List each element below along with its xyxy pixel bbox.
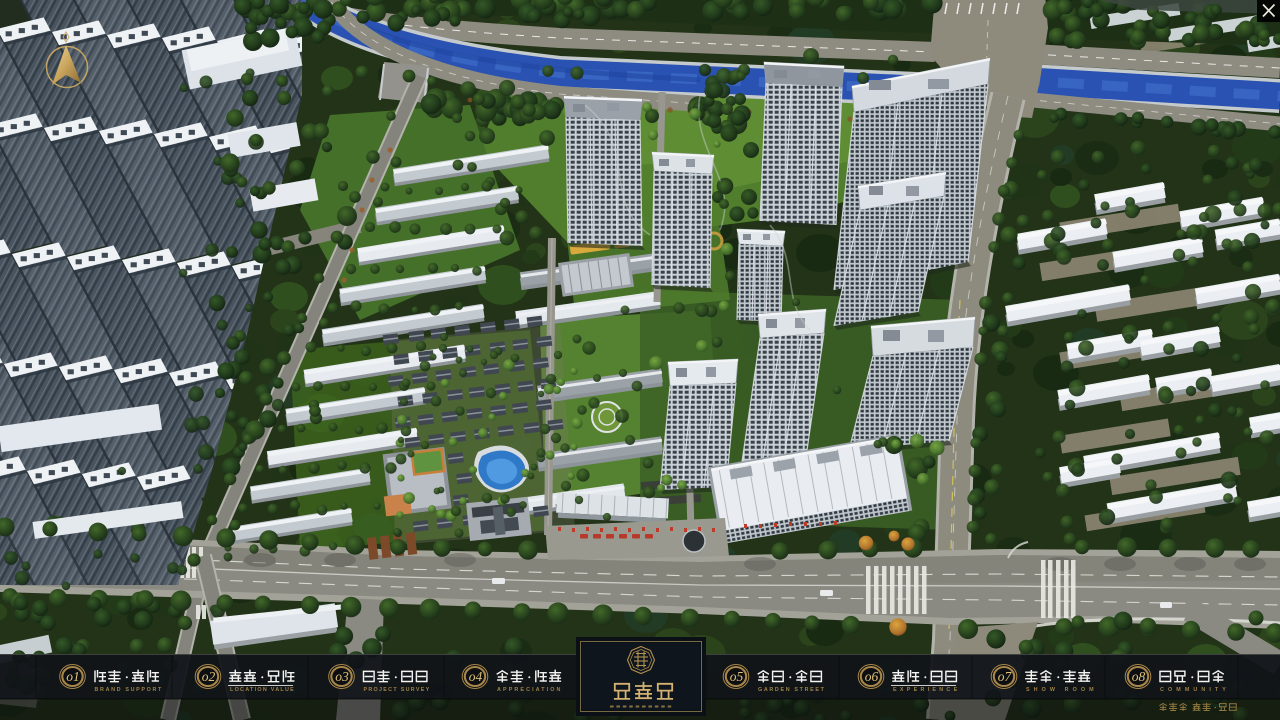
- svg-text:o4: o4: [469, 669, 483, 684]
- svg-text:o3: o3: [335, 669, 349, 684]
- svg-text:o6: o6: [865, 669, 879, 684]
- svg-text:o1: o1: [66, 669, 80, 684]
- svg-text:o7: o7: [998, 669, 1013, 684]
- svg-text:GARDEN STREET: GARDEN STREET: [758, 687, 826, 693]
- svg-text:o2: o2: [202, 669, 216, 684]
- svg-text:COMMUNITY: COMMUNITY: [1160, 687, 1230, 693]
- svg-text:EXPERIENCE: EXPERIENCE: [893, 687, 960, 693]
- svg-text:o5: o5: [730, 669, 744, 684]
- svg-text:o8: o8: [1132, 669, 1146, 684]
- svg-text:SHOW ROOM: SHOW ROOM: [1026, 687, 1098, 693]
- svg-text:LOCATION VALUE: LOCATION VALUE: [230, 687, 295, 693]
- svg-text:BRAND SUPPORT: BRAND SUPPORT: [95, 687, 163, 693]
- svg-text:PROJECT SURVEY: PROJECT SURVEY: [364, 687, 431, 693]
- svg-text:APPRECIATION: APPRECIATION: [497, 687, 563, 693]
